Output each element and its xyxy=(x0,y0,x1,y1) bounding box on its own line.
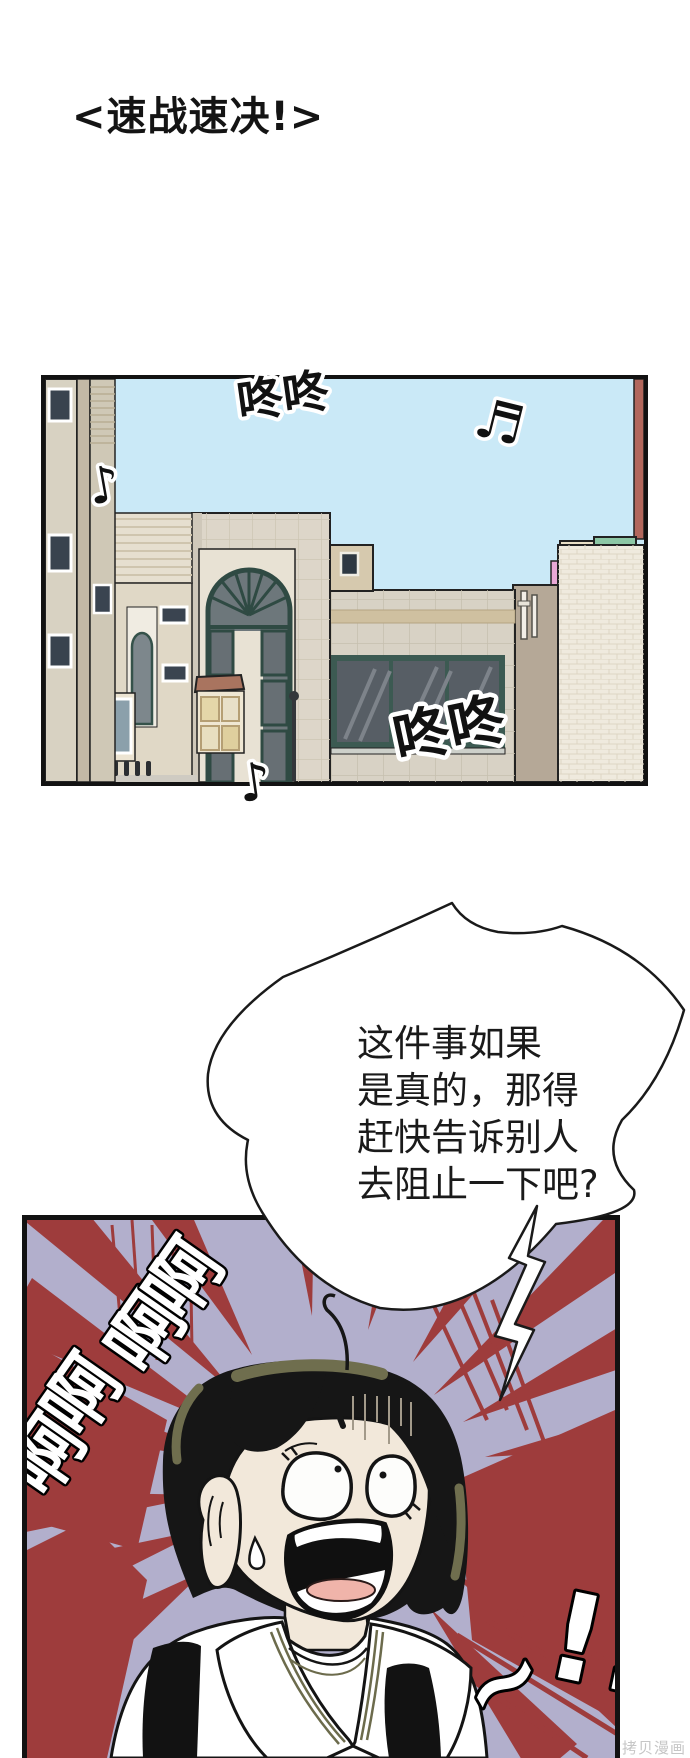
bubble-text-line-1: 这件事如果 xyxy=(357,1022,542,1065)
awning xyxy=(195,675,244,692)
scream-scene: 啊 啊 啊 啊 ~ !! xyxy=(27,1220,615,1758)
tongue xyxy=(307,1579,375,1601)
city-scene xyxy=(45,379,644,782)
eye-left xyxy=(283,1453,351,1519)
panel-scream: 啊 啊 啊 啊 ~ !! xyxy=(22,1215,620,1758)
episode-title-sfx: <速战速决!> xyxy=(72,84,324,142)
building-far-left xyxy=(45,379,115,782)
eye-right xyxy=(367,1456,415,1516)
bubble-text-line-3: 赶快告诉别人 xyxy=(357,1116,579,1159)
strap-left xyxy=(142,1642,201,1758)
site-watermark: 拷贝漫画 xyxy=(622,1737,686,1758)
lamp-pole xyxy=(292,699,296,781)
bubble-text-line-4: 去阻止一下吧? xyxy=(357,1163,599,1206)
bubble-text-line-2: 是真的，那得 xyxy=(357,1069,579,1112)
panel-buildings xyxy=(41,375,648,786)
antenna-hair xyxy=(324,1295,347,1370)
